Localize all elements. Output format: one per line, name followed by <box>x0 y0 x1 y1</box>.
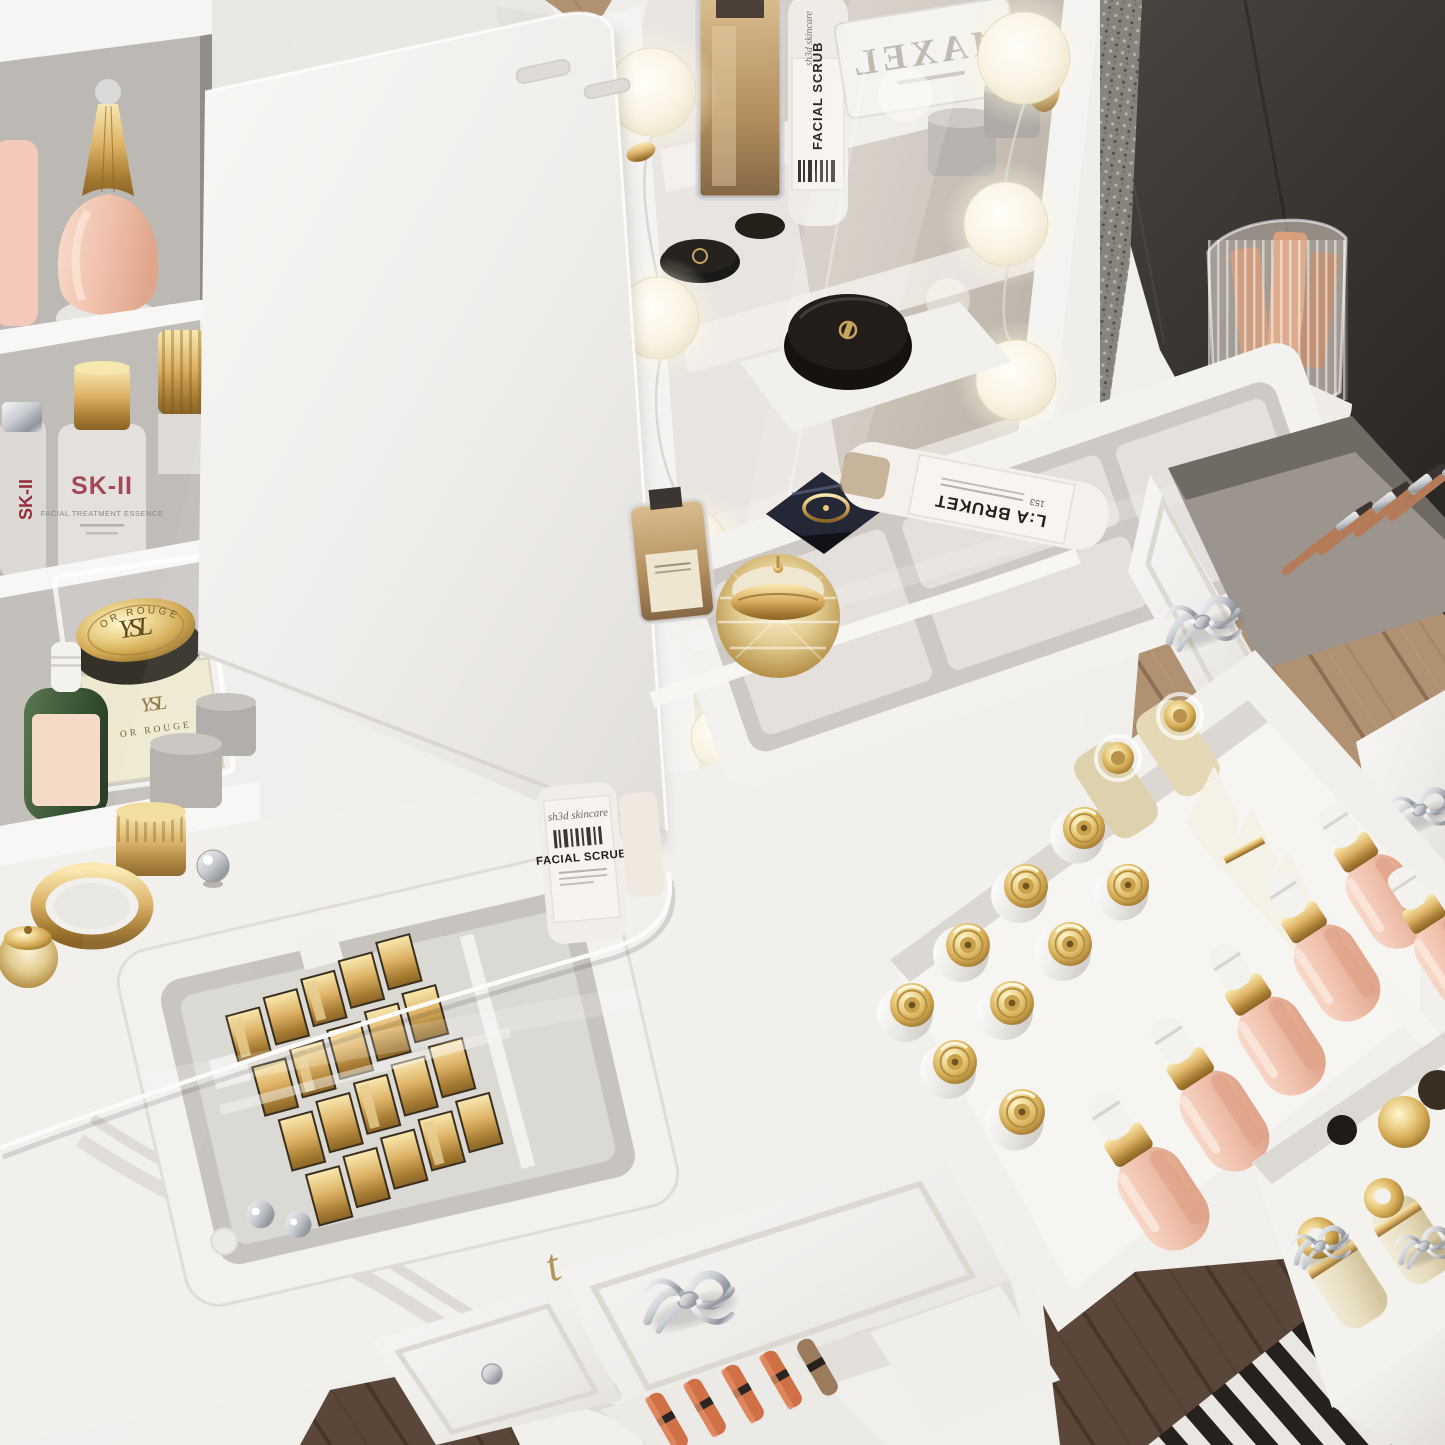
sk2-front-label: SK-II <box>71 472 133 500</box>
labruket-pump <box>838 451 891 501</box>
bulb-6 <box>924 142 1088 306</box>
reflected-scrub-script: sh3d skincare <box>804 11 815 66</box>
sk2-bottle-back: SK-II <box>0 402 46 576</box>
sk2-back-label: SK-II <box>16 479 36 520</box>
black-cap-pot <box>1327 1115 1357 1145</box>
gold-lid-jar <box>1378 1096 1430 1148</box>
ornate-gold-jar <box>716 554 840 678</box>
sk2-sub-label: FACIAL TREATMENT ESSENCE <box>41 509 164 518</box>
perfume-label <box>645 549 703 612</box>
green-bottle-label <box>32 714 100 806</box>
amber-perfume-bottle <box>627 484 716 623</box>
scene-canvas: FACIAL SCRUB sh3d skincare MAXEL <box>0 0 1445 1445</box>
pink-tube <box>0 140 38 326</box>
mini-ornate-gold-jar <box>0 926 58 988</box>
product-photo-vanity-scene: FACIAL SCRUB sh3d skincare MAXEL <box>0 0 1445 1445</box>
small-silver-knob <box>482 1364 502 1384</box>
